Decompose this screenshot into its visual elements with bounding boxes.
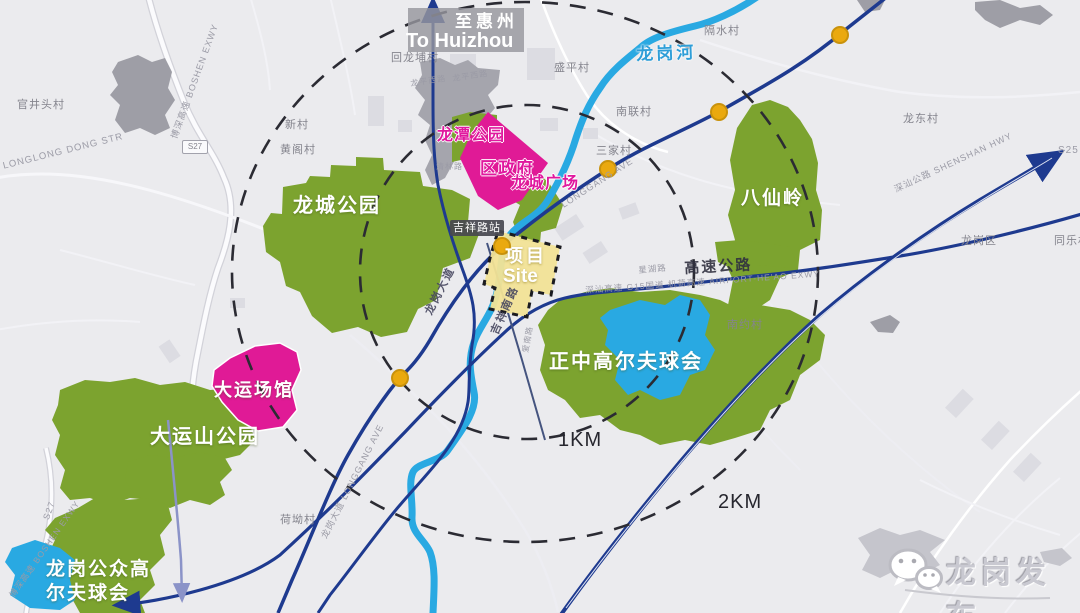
to-huizhou-sign bbox=[408, 8, 524, 52]
label-s27-badge: S27 bbox=[182, 140, 208, 154]
station-dot bbox=[392, 370, 408, 386]
jixiang-road-station-label: 吉祥路站 bbox=[450, 220, 504, 236]
map-canvas: 至惠州 To Huizhou 吉祥路站 项目 Site 1KM 2KM 龙岗河 … bbox=[0, 0, 1080, 613]
station-dot bbox=[600, 161, 616, 177]
watermark-text: 龙岗发布 bbox=[946, 548, 1080, 613]
baxianling-shape bbox=[725, 100, 822, 330]
station-dot bbox=[494, 238, 510, 254]
station-dot bbox=[832, 27, 848, 43]
map-graphics bbox=[0, 0, 1080, 613]
gray-terrain-layer bbox=[85, 0, 1072, 578]
station-dot bbox=[711, 104, 727, 120]
